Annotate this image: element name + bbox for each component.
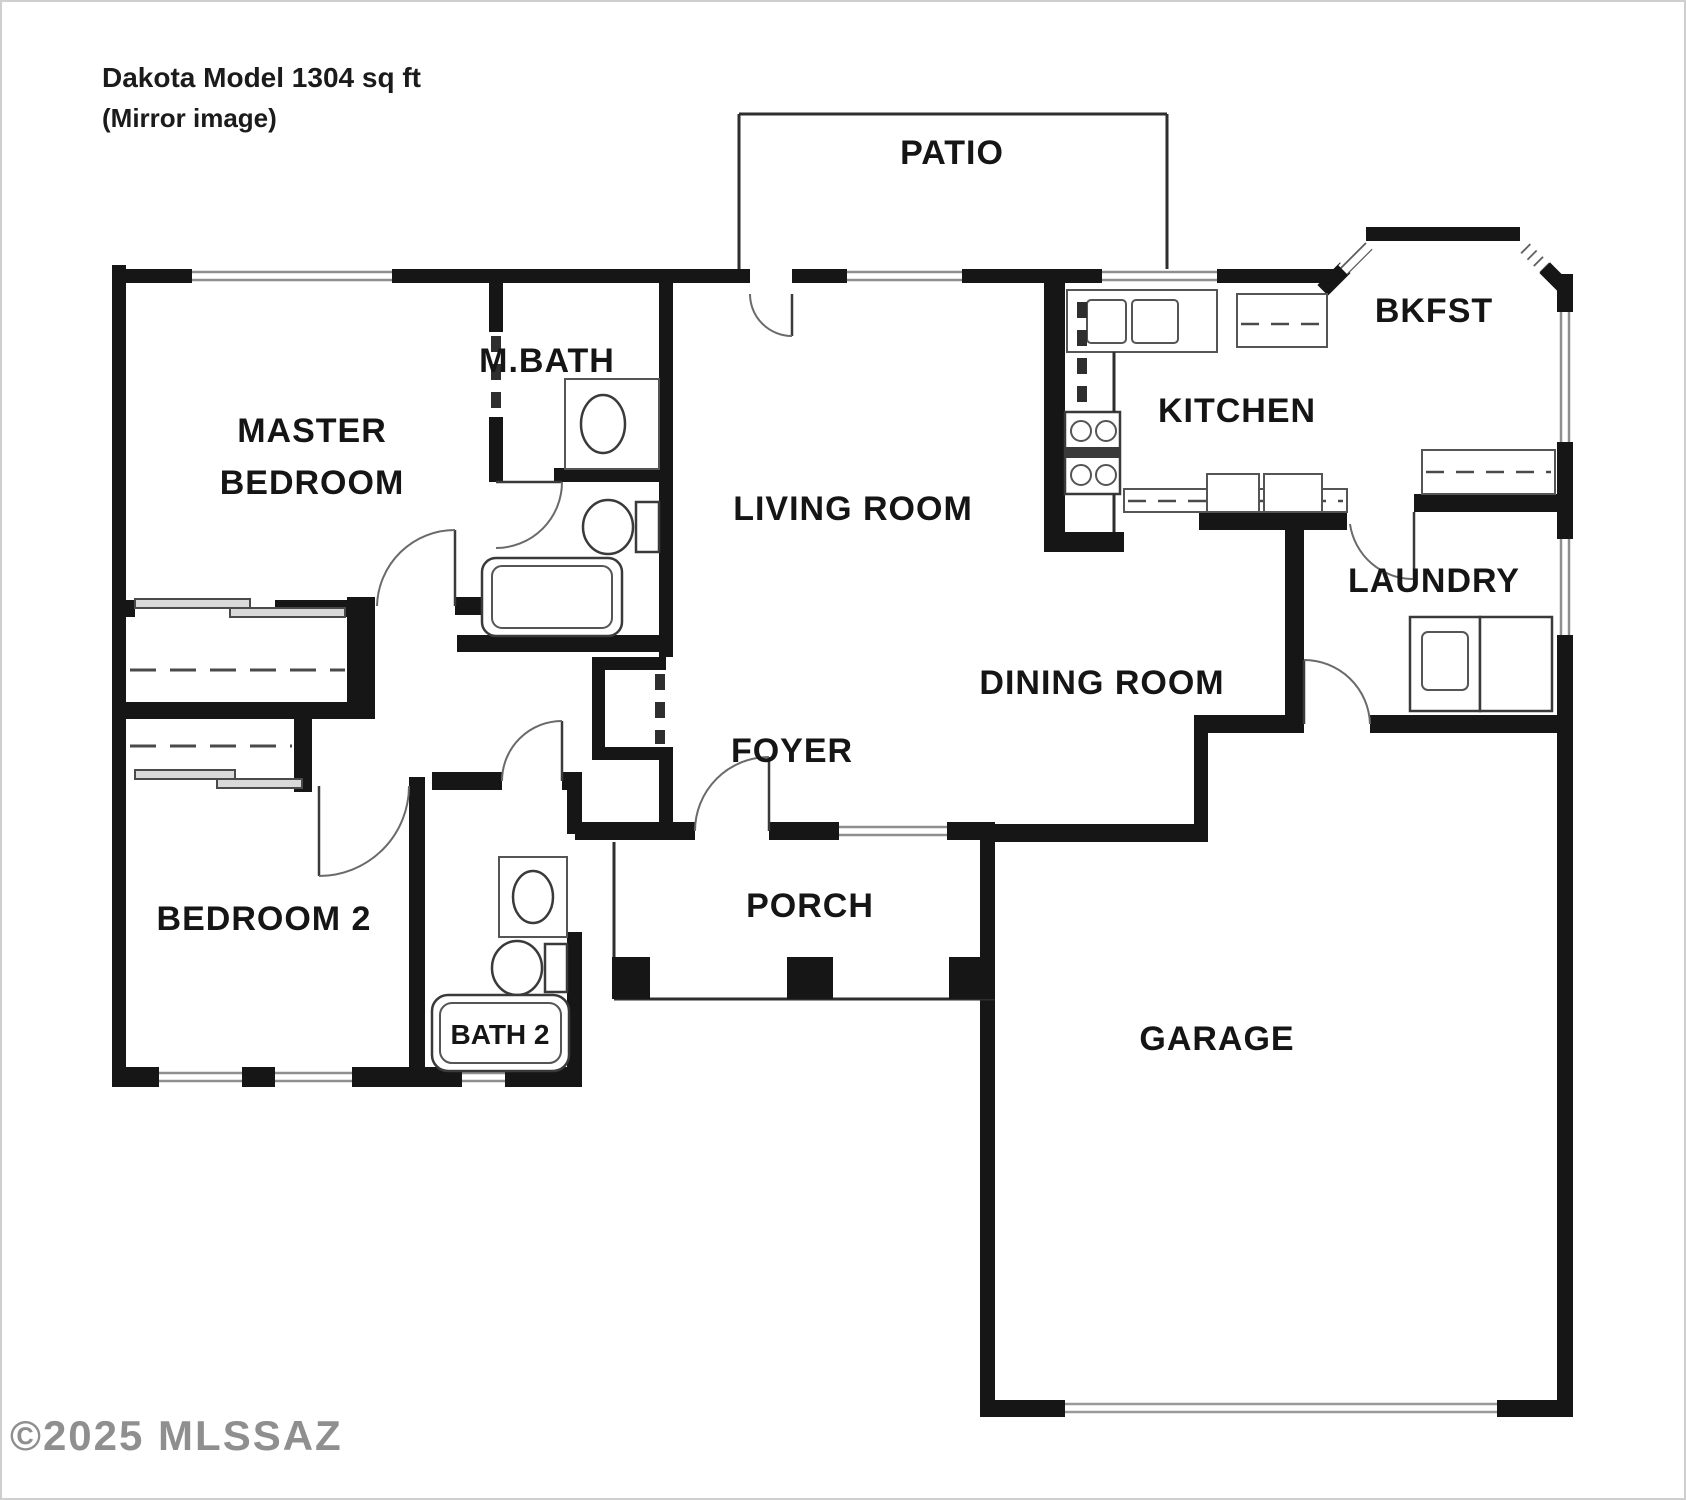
plan-title: Dakota Model 1304 sq ft (102, 62, 421, 93)
master-closet-sliding-door (130, 599, 345, 670)
m-bath-door (496, 482, 562, 548)
label-living-room: LIVING ROOM (733, 490, 973, 528)
label-m-bath: M.BATH (479, 342, 615, 380)
label-master-line1: MASTER (237, 412, 387, 450)
window-laundry (1557, 539, 1573, 635)
porch-pier (612, 957, 650, 999)
label-patio: PATIO (900, 134, 1004, 172)
bath2-toilet (492, 941, 567, 995)
label-master-line2: BEDROOM (220, 464, 405, 502)
laundry-garage-door (1304, 660, 1370, 724)
label-laundry: LAUNDRY (1348, 562, 1520, 600)
label-kitchen: KITCHEN (1158, 392, 1316, 430)
bedroom2-closet-sliding-door (130, 746, 302, 788)
m-bath-sink (565, 379, 659, 469)
bedroom2-door (319, 786, 409, 876)
label-bkfst: BKFST (1375, 292, 1493, 330)
master-bedroom-door (377, 530, 455, 606)
bay-window-right (1522, 245, 1547, 270)
window-bkfst (1557, 312, 1573, 442)
mls-watermark: ©2025 MLSSAZ (10, 1412, 343, 1459)
interior-walls (126, 283, 1557, 1067)
window-bedroom2-a (159, 1067, 242, 1087)
bay-window-left (1343, 245, 1368, 270)
label-foyer: FOYER (731, 732, 853, 770)
m-bath-tub (482, 558, 622, 636)
porch-pier (787, 957, 833, 999)
window-kitchen (1102, 269, 1217, 283)
patio-door (750, 294, 792, 336)
window-master (192, 269, 392, 283)
label-dining-room: DINING ROOM (979, 664, 1224, 702)
window-living (847, 269, 962, 283)
porch-pier (949, 957, 995, 999)
closets (130, 599, 345, 788)
window-dining (839, 822, 947, 840)
floor-plan-drawing: PATIO MASTER BEDROOM M.BATH LIVING ROOM … (2, 2, 1684, 1498)
label-garage: GARAGE (1139, 1020, 1294, 1058)
bkfst-counter (1237, 294, 1327, 347)
garage-door (1065, 1404, 1497, 1412)
label-bath2: BATH 2 (450, 1019, 549, 1050)
kitchen-stove (1065, 412, 1120, 494)
m-bath-toilet (583, 500, 659, 554)
bath2-sink (499, 857, 567, 937)
label-porch: PORCH (746, 887, 874, 925)
label-bedroom2: BEDROOM 2 (157, 900, 372, 938)
plan-subtitle: (Mirror image) (102, 103, 277, 133)
laundry-washer-dryer (1410, 617, 1552, 711)
window-bedroom2-b (275, 1067, 352, 1087)
floor-plan-page: PATIO MASTER BEDROOM M.BATH LIVING ROOM … (0, 0, 1686, 1500)
kitchen-sink (1067, 290, 1217, 352)
bath2-door (502, 721, 562, 781)
